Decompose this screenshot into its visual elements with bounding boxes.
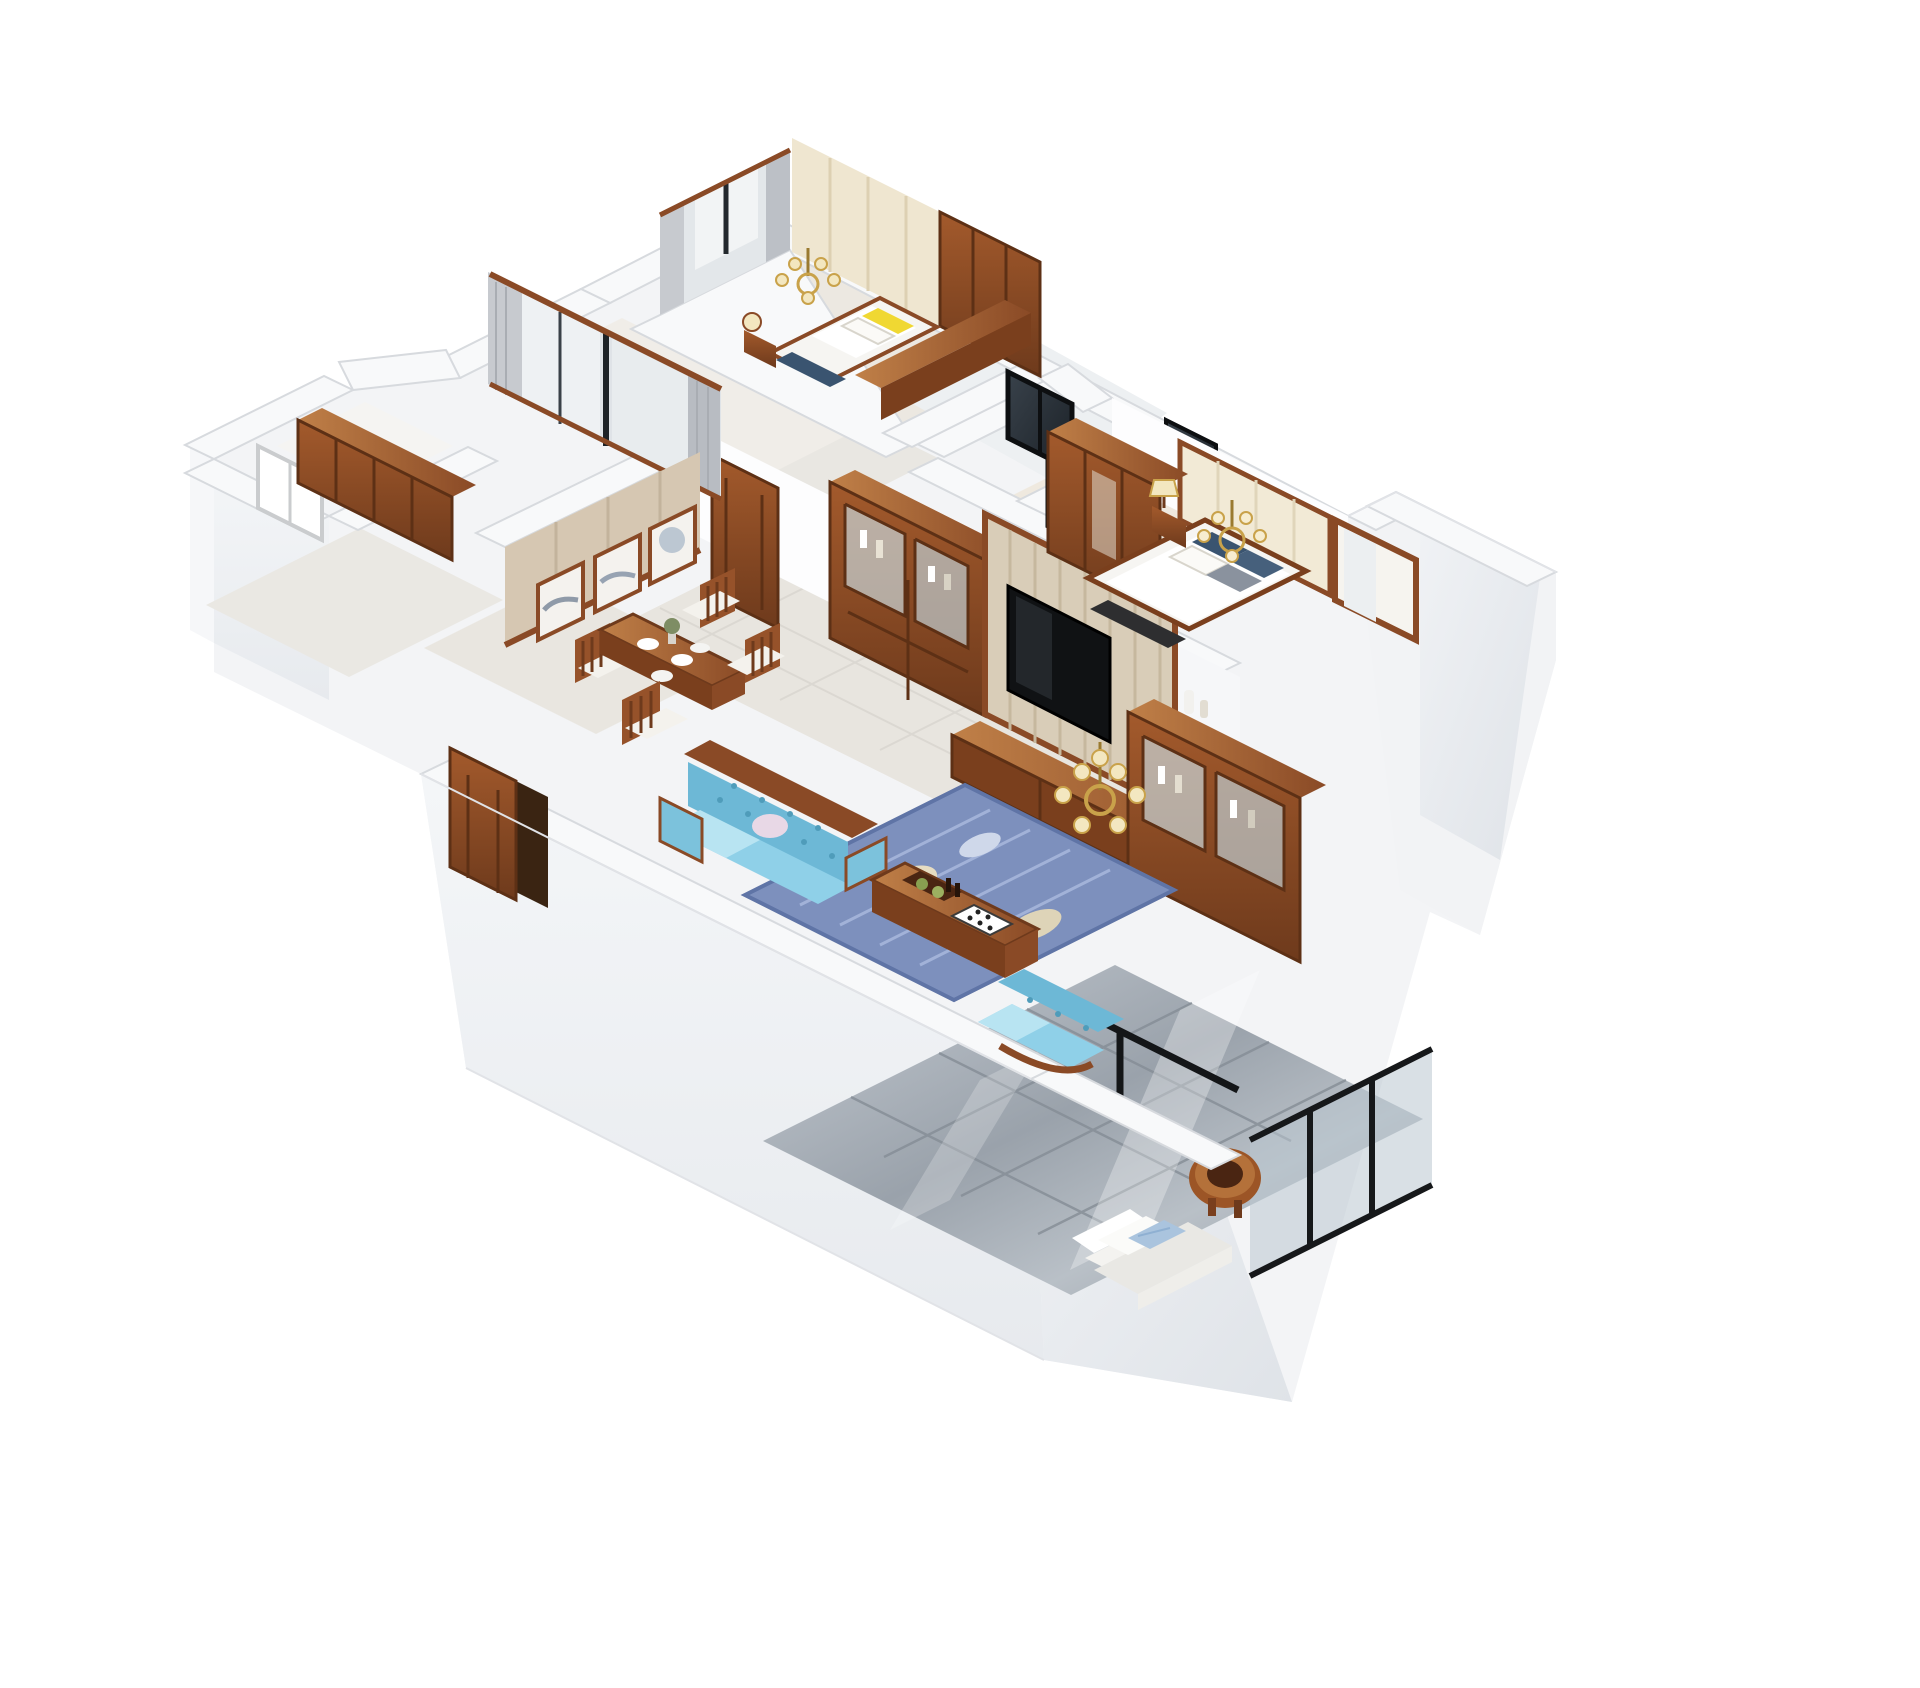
floorplan-render: 3D cutaway floor-plan rendering of an ap… (0, 0, 1920, 1688)
curtain (766, 150, 790, 262)
curtain (660, 203, 684, 315)
sofa-pillow (752, 814, 788, 838)
table-lamp (743, 313, 761, 331)
floorplan-svg (0, 0, 1920, 1688)
